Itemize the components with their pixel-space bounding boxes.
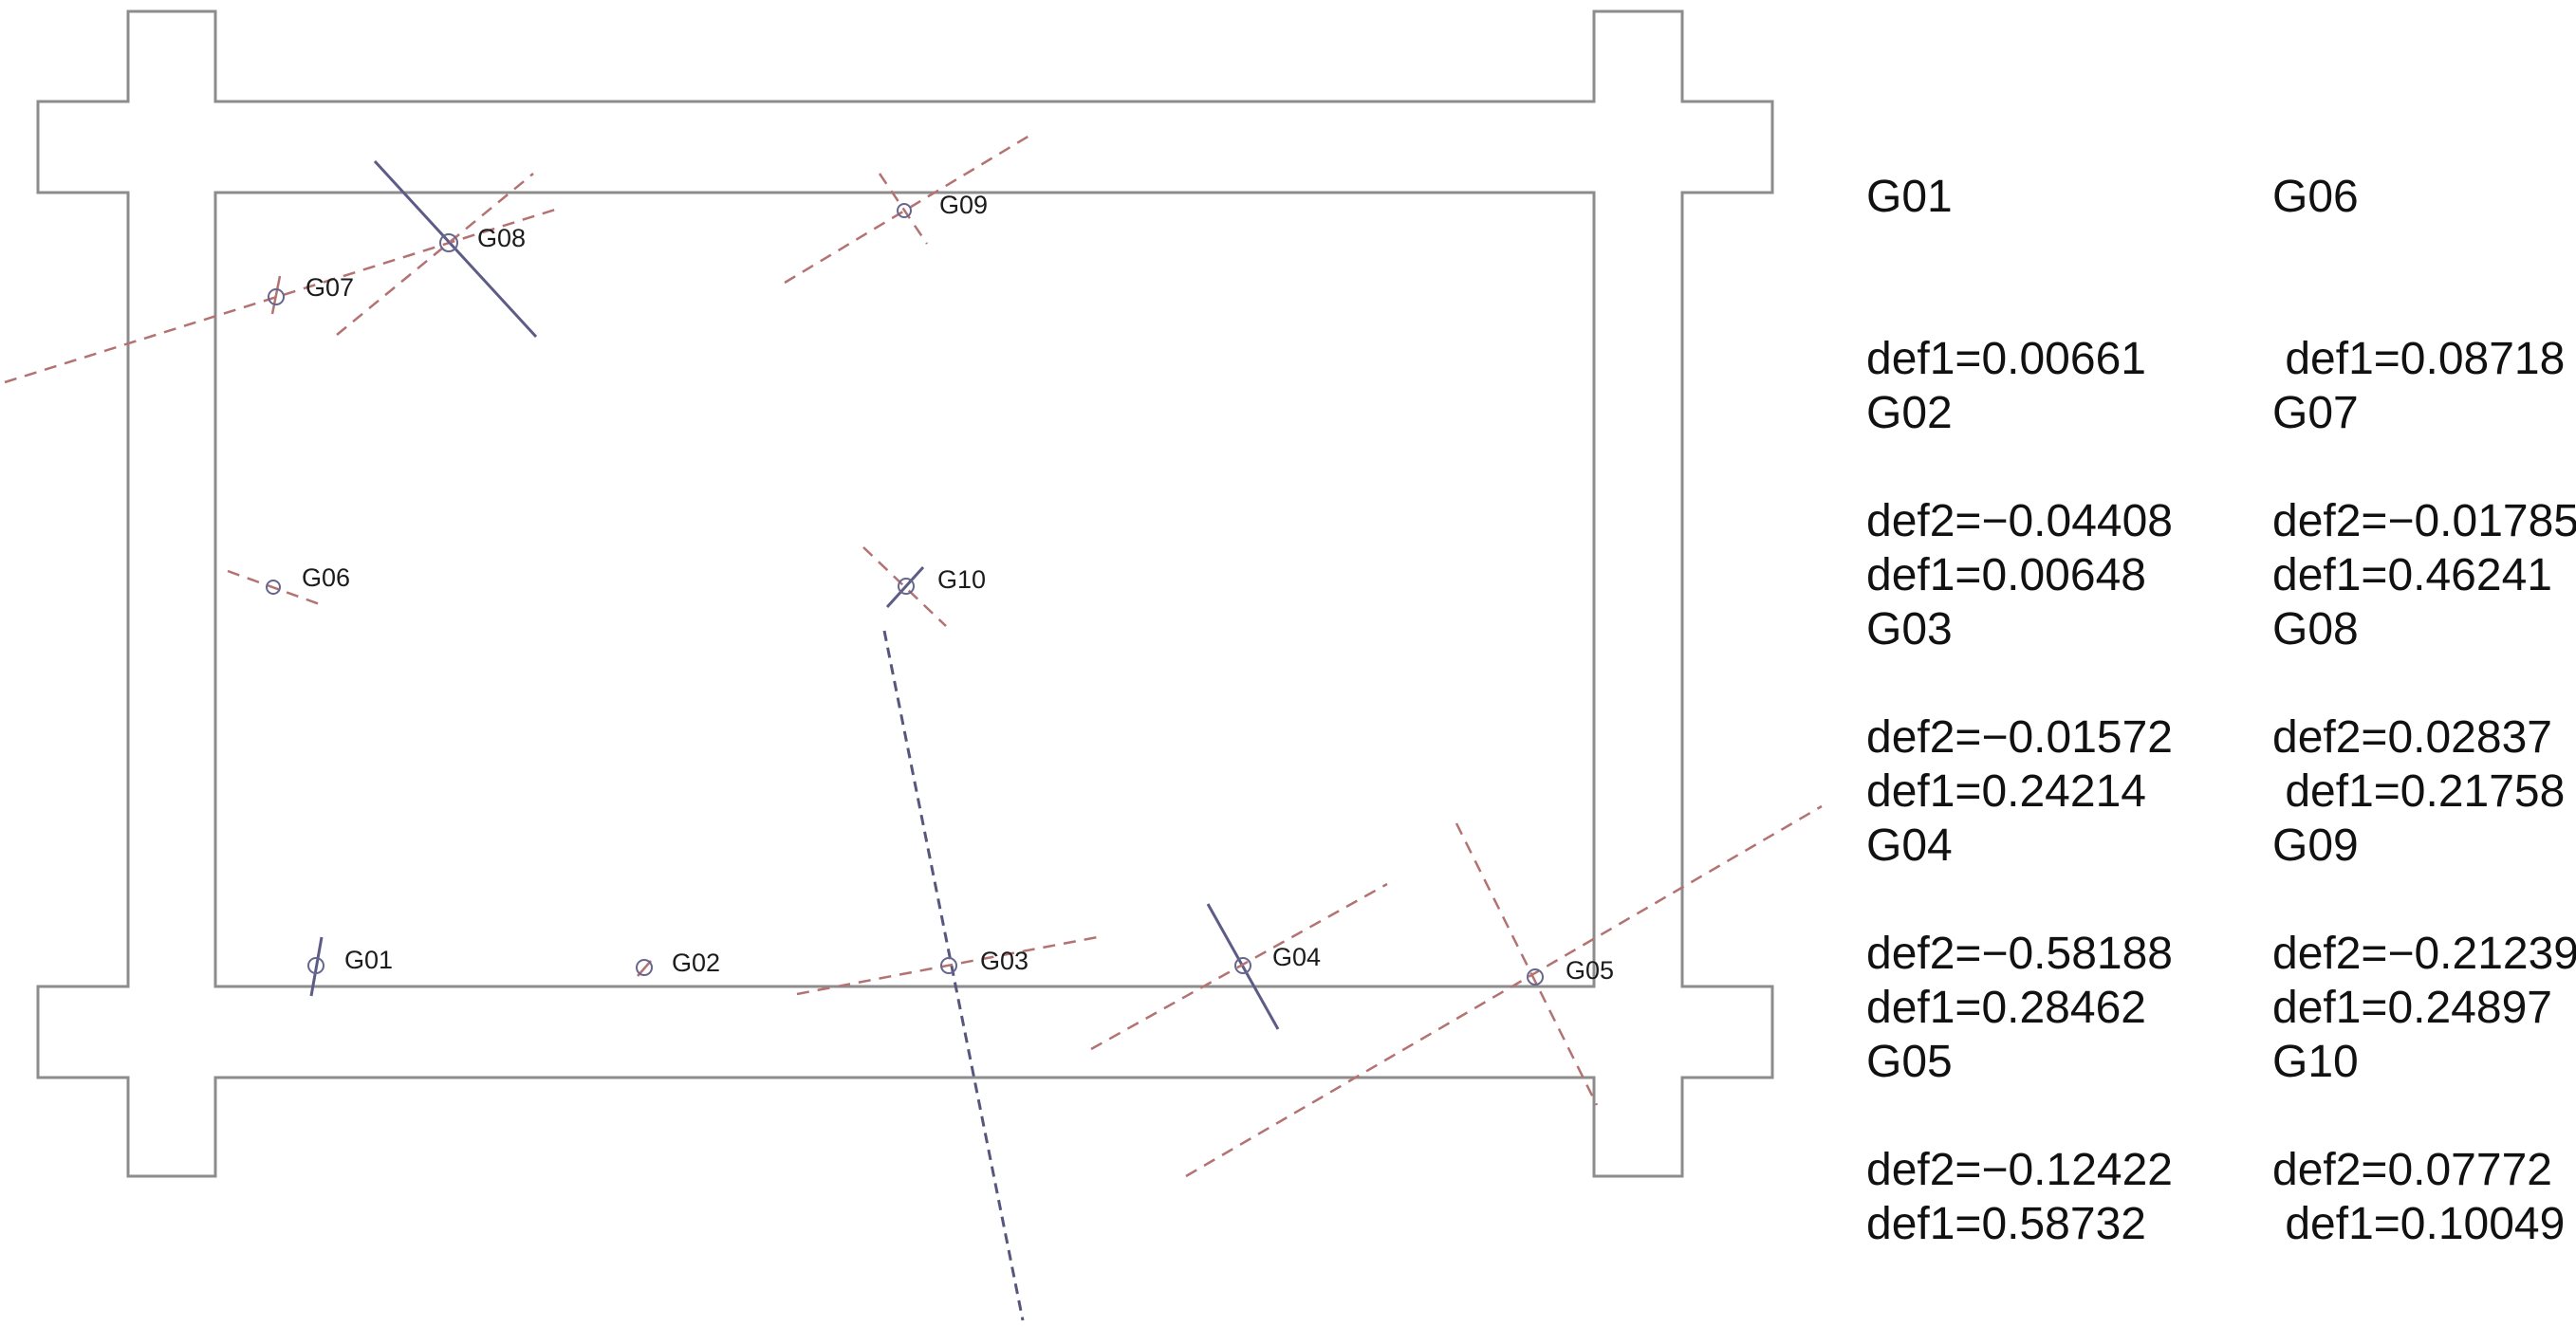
gauge-id: G06 xyxy=(2272,170,2576,224)
readout-group-g05: G05 def1=0.58732 def2=0.27624 xyxy=(1866,927,2146,1327)
readout-column-right: G06 def1=0.08718 def2=−0.01785 G07 def1=… xyxy=(2272,0,2576,1327)
gauge-id: G03 xyxy=(1866,602,2173,656)
def1-value: def1=0.58732 xyxy=(1866,1197,2146,1251)
gauge-label-g04: G04 xyxy=(1272,943,1321,971)
gauge-line-g04-1 xyxy=(1091,884,1387,1049)
gauge-label-g05: G05 xyxy=(1566,956,1614,985)
gauge-id: G07 xyxy=(2272,386,2552,440)
gauge-id: G08 xyxy=(2272,602,2576,656)
readout-group-g10: G10 def1=0.10049 def2=−0.05110 xyxy=(2272,927,2575,1327)
gauge-id: G05 xyxy=(1866,1035,2146,1089)
page: G01G02G03G04G05G06G07G08G09G10 G01 def1=… xyxy=(0,0,2576,1327)
gauge-label-g01: G01 xyxy=(344,946,393,974)
def1-value: def1=0.10049 xyxy=(2272,1197,2575,1251)
gauge-id: G01 xyxy=(1866,170,2173,224)
gauge-line-g05-1 xyxy=(1186,806,1822,1176)
gauge-id: G10 xyxy=(2272,1035,2575,1089)
gauge-line-g10-0 xyxy=(887,567,923,607)
gauge-id: G02 xyxy=(1866,386,2173,440)
gauge-id: G04 xyxy=(1866,819,2173,873)
gauge-label-g10: G10 xyxy=(937,565,986,594)
gauge-line-g03-0 xyxy=(884,631,1023,1320)
gauge-label-g08: G08 xyxy=(477,224,526,252)
gauge-line-g04-0 xyxy=(1208,904,1278,1029)
gauge-label-g03: G03 xyxy=(980,947,1029,975)
gauge-line-g09-1 xyxy=(880,174,927,244)
gauge-label-g02: G02 xyxy=(672,949,720,977)
gauge-line-g07-0 xyxy=(5,210,555,382)
gauge-label-g07: G07 xyxy=(306,273,354,302)
gauge-label-g09: G09 xyxy=(939,191,988,219)
gauge-label-g06: G06 xyxy=(302,563,350,592)
gauge-id: G09 xyxy=(2272,819,2552,873)
gauge-line-g09-0 xyxy=(785,136,1029,283)
gauge-line-g07-1 xyxy=(272,276,280,314)
gauge-line-g08-1 xyxy=(337,174,533,335)
